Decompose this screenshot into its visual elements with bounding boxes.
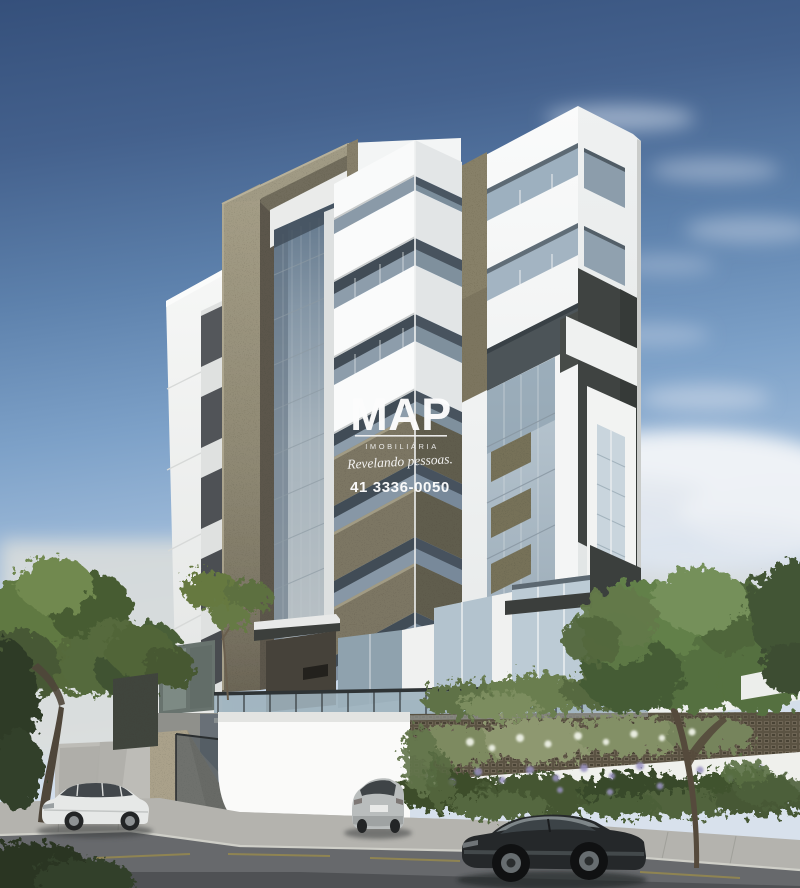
svg-text:MAP: MAP	[350, 389, 452, 440]
svg-text:41 3336-0050: 41 3336-0050	[350, 479, 450, 496]
svg-text:IMOBILIÁRIA: IMOBILIÁRIA	[365, 442, 439, 451]
